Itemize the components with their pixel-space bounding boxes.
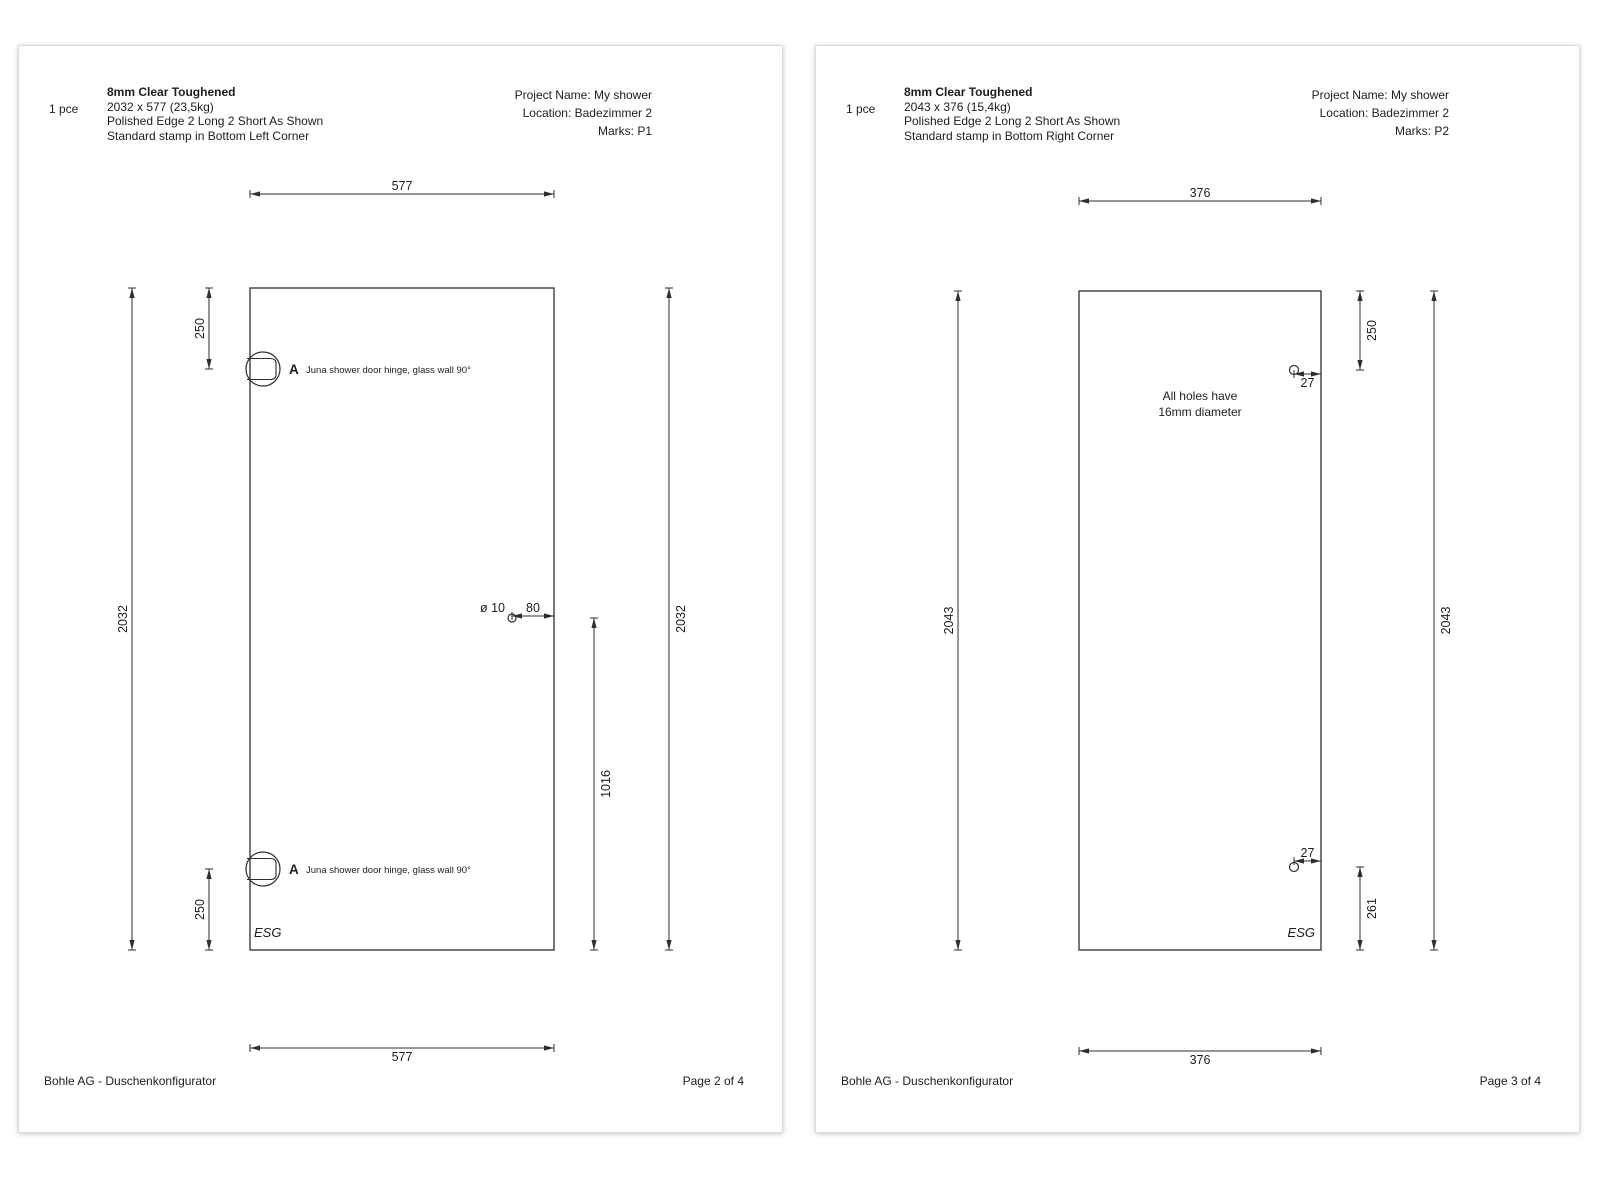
dimension-arrowhead <box>1357 291 1362 301</box>
dimension-label: 2032 <box>116 605 130 633</box>
dimension-label: 2043 <box>1439 607 1453 635</box>
dimension-arrowhead <box>1311 1048 1321 1053</box>
footer-brand: Bohle AG - Duschenkonfigurator <box>44 1074 216 1088</box>
dimension-arrowhead <box>666 940 671 950</box>
dimension-arrowhead <box>544 613 554 618</box>
dimension-arrowhead <box>1431 940 1436 950</box>
dimension-arrowhead <box>129 940 134 950</box>
dimension-label: 376 <box>1190 186 1211 200</box>
dimension-label: 577 <box>392 1050 413 1064</box>
dimension-arrowhead <box>1357 940 1362 950</box>
hinge-note: Juna shower door hinge, glass wall 90° <box>306 365 471 376</box>
dimension-label: 577 <box>392 179 413 193</box>
dimension-label: 250 <box>1365 320 1379 341</box>
dimension-arrowhead <box>544 1045 554 1050</box>
dimension-arrowhead <box>544 191 554 196</box>
hole-diameter-label: ø 10 <box>480 601 505 615</box>
dimension-arrowhead <box>250 191 260 196</box>
dimension-arrowhead <box>1357 360 1362 370</box>
dimension-label: 80 <box>526 601 540 615</box>
dimension-label: 376 <box>1190 1053 1211 1067</box>
holes-note: All holes have <box>1163 389 1238 403</box>
dimension-arrowhead <box>1431 291 1436 301</box>
dimension-label: 250 <box>193 899 207 920</box>
esg-stamp: ESG <box>1288 925 1315 940</box>
dimension-label: 261 <box>1365 898 1379 919</box>
dimension-label: 27 <box>1301 376 1315 390</box>
dimension-arrowhead <box>250 1045 260 1050</box>
dimension-arrowhead <box>1357 867 1362 877</box>
dimension-label: 2032 <box>674 605 688 633</box>
hinge-tag: A <box>289 862 299 877</box>
document-page-1: 1 pce 8mm Clear Toughened 2032 x 577 (23… <box>18 45 783 1133</box>
dimension-arrowhead <box>129 288 134 298</box>
dimension-arrowhead <box>206 940 211 950</box>
hinge-note: Juna shower door hinge, glass wall 90° <box>306 865 471 876</box>
dimension-arrowhead <box>1079 198 1089 203</box>
hinge-cutout-circle <box>246 852 280 886</box>
dimension-label: 2043 <box>942 607 956 635</box>
holes-note: 16mm diameter <box>1158 405 1241 419</box>
document-page-2: 1 pce 8mm Clear Toughened 2043 x 376 (15… <box>815 45 1580 1133</box>
dimension-arrowhead <box>591 618 596 628</box>
hinge-tag: A <box>289 362 299 377</box>
dimension-label: 250 <box>193 318 207 339</box>
page-number: Page 2 of 4 <box>683 1074 744 1088</box>
footer-brand: Bohle AG - Duschenkonfigurator <box>841 1074 1013 1088</box>
technical-drawing: 376376272720432043250261All holes have16… <box>816 46 1581 1134</box>
dimension-arrowhead <box>1079 1048 1089 1053</box>
dimension-arrowhead <box>666 288 671 298</box>
dimension-arrowhead <box>591 940 596 950</box>
dimension-arrowhead <box>955 291 960 301</box>
technical-drawing: 57757780203220322502501016ø 10AJuna show… <box>19 46 784 1134</box>
page-number: Page 3 of 4 <box>1480 1074 1541 1088</box>
dimension-label: 27 <box>1301 846 1315 860</box>
hinge-cutout-circle <box>246 352 280 386</box>
dimension-arrowhead <box>206 869 211 879</box>
dimension-arrowhead <box>1311 198 1321 203</box>
dimension-label: 1016 <box>599 770 613 798</box>
esg-stamp: ESG <box>254 925 281 940</box>
hinge-plate <box>247 359 276 380</box>
dimension-arrowhead <box>955 940 960 950</box>
dimension-arrowhead <box>206 288 211 298</box>
dimension-arrowhead <box>206 359 211 369</box>
hinge-plate <box>247 859 276 880</box>
